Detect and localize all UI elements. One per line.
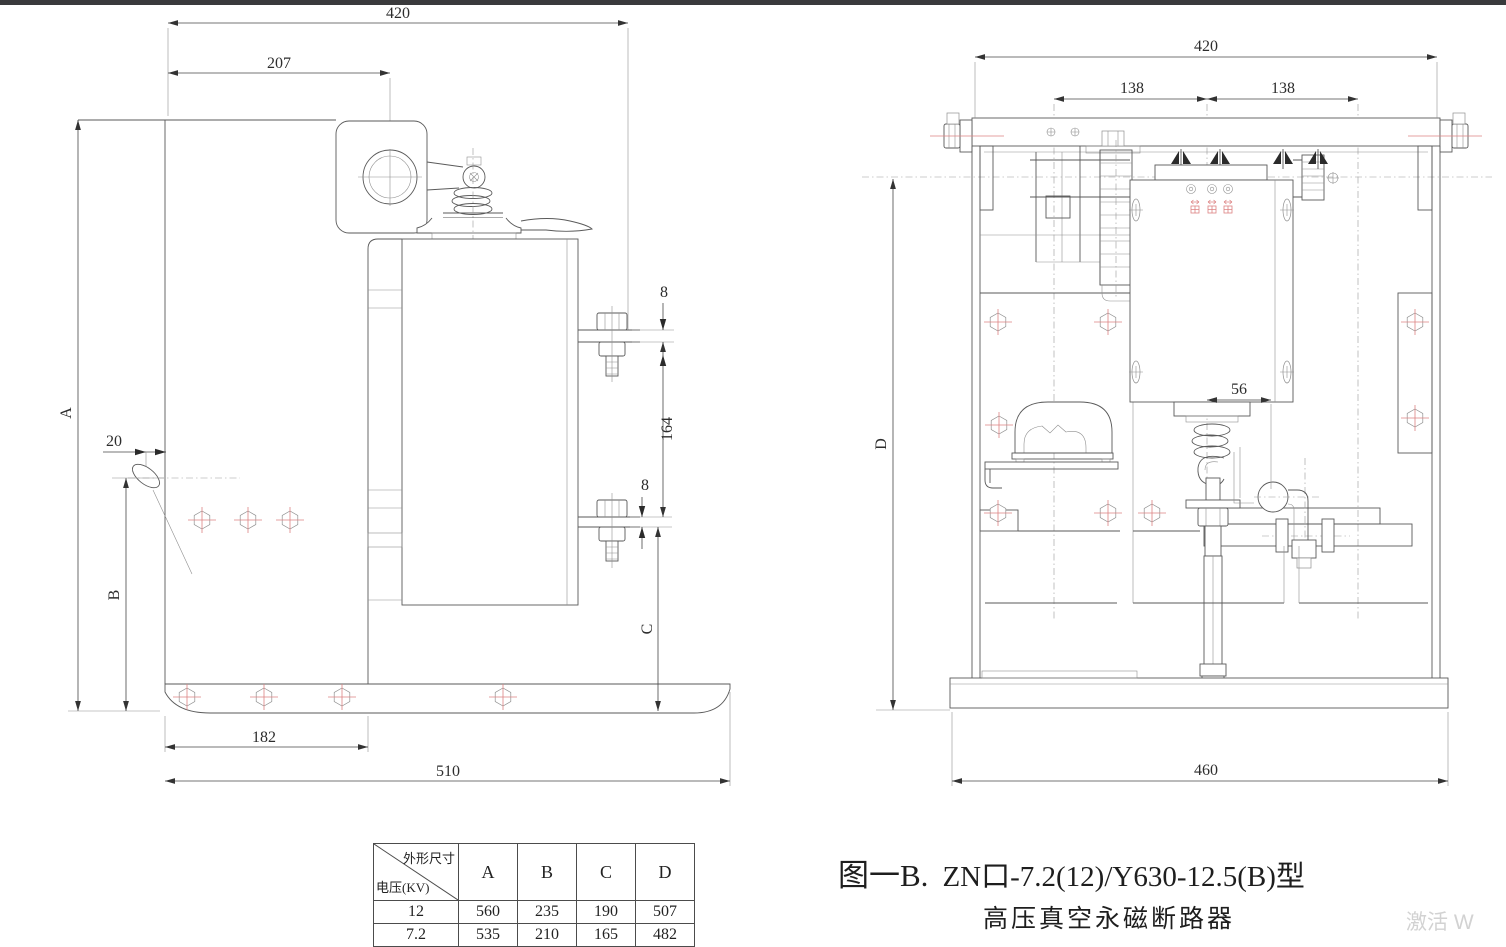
value-cell: 235	[518, 901, 577, 924]
dim-hole-span: 182	[252, 729, 276, 746]
dim-pad-bottom: 8	[641, 477, 649, 494]
upper-terminal-bolt	[597, 306, 627, 382]
dimension-table: 外形尺寸 电压(KV) A B C D 12 560 235 190 507 7…	[373, 843, 695, 947]
cam-housing	[985, 402, 1118, 488]
dim-height-d: D	[873, 438, 890, 450]
dim-right-overall-width: 420	[1194, 38, 1218, 55]
table-corner-cell: 外形尺寸 电压(KV)	[374, 844, 459, 901]
activate-windows-watermark: 激活 W	[1406, 906, 1474, 936]
value-cell: 210	[518, 924, 577, 947]
table-row: 12 560 235 190 507	[374, 901, 695, 924]
left-view: 420 207 A 20 B 8 164 8 C 182 51	[58, 5, 730, 786]
value-cell: 560	[459, 901, 518, 924]
dim-handle-offset: 20	[106, 433, 122, 450]
caption-subtitle: 高压真空永磁断路器	[983, 899, 1308, 935]
dim-height-a: A	[58, 407, 75, 419]
dim-terminal-span: 164	[659, 417, 676, 441]
table-col-a: A	[459, 844, 518, 901]
value-cell: 190	[577, 901, 636, 924]
dim-left-overall-width: 420	[386, 5, 410, 22]
value-cell: 507	[636, 901, 695, 924]
technical-drawing-canvas: 420 207 A 20 B 8 164 8 C 182 51	[0, 0, 1506, 946]
right-view: 420 138 138 D 56 460	[862, 38, 1492, 786]
voltage-cell: 7.2	[374, 924, 459, 947]
dim-rod-offset: 56	[1231, 381, 1247, 398]
voltage-cell: 12	[374, 901, 459, 924]
dim-left-base-width: 510	[436, 763, 460, 780]
dim-pad-top: 8	[660, 284, 668, 301]
table-col-c: C	[577, 844, 636, 901]
table-col-d: D	[636, 844, 695, 901]
dim-pitch-right: 138	[1271, 80, 1295, 97]
dim-height-c: C	[639, 624, 656, 635]
dim-right-base-width: 460	[1194, 762, 1218, 779]
table-corner-bottom-label: 电压(KV)	[376, 877, 429, 896]
table-corner-top-label: 外形尺寸	[403, 848, 455, 867]
lower-terminal-bolt	[597, 493, 627, 568]
dim-pitch-left: 138	[1120, 80, 1144, 97]
value-cell: 165	[577, 924, 636, 947]
figure-caption: 图一B.ZN口-7.2(12)/Y630-12.5(B)型 高压真空永磁断路器	[838, 850, 1308, 935]
table-col-b: B	[518, 844, 577, 901]
figure-number: 图一B.	[838, 858, 928, 893]
table-row: 7.2 535 210 165 482	[374, 924, 695, 947]
model-designation: ZN口-7.2(12)/Y630-12.5(B)型	[942, 861, 1304, 893]
dim-left-upper-width: 207	[267, 55, 291, 72]
manual-handle	[128, 460, 240, 574]
value-cell: 535	[459, 924, 518, 947]
value-cell: 482	[636, 924, 695, 947]
dim-height-b: B	[106, 590, 123, 601]
